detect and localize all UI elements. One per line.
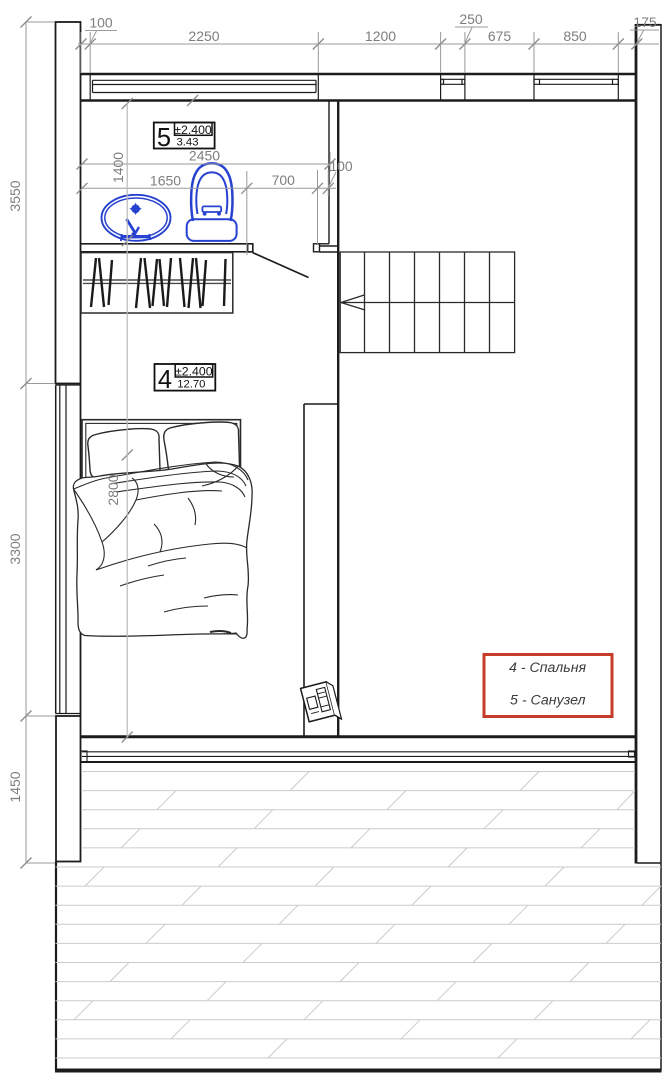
svg-text:3550: 3550: [7, 180, 23, 211]
svg-text:100: 100: [329, 158, 353, 174]
svg-text:250: 250: [459, 11, 483, 27]
svg-text:850: 850: [563, 28, 587, 44]
svg-text:12.70: 12.70: [177, 378, 205, 390]
svg-text:2250: 2250: [188, 28, 219, 44]
svg-text:3300: 3300: [7, 533, 23, 564]
svg-text:175: 175: [633, 14, 657, 30]
svg-text:675: 675: [488, 28, 512, 44]
svg-text:100: 100: [89, 15, 113, 31]
svg-text:2800: 2800: [105, 474, 121, 505]
svg-text:±2.400: ±2.400: [175, 364, 213, 378]
svg-text:5: 5: [157, 124, 171, 152]
svg-text:5 - Санузел: 5 - Санузел: [510, 693, 586, 709]
svg-text:1400: 1400: [110, 152, 126, 183]
svg-text:700: 700: [272, 172, 296, 188]
svg-text:1450: 1450: [7, 771, 23, 802]
svg-text:4: 4: [158, 366, 172, 394]
svg-text:4 - Спальня: 4 - Спальня: [509, 660, 587, 676]
svg-text:±2.400: ±2.400: [174, 123, 212, 137]
svg-text:1200: 1200: [365, 28, 396, 44]
svg-text:2450: 2450: [189, 148, 220, 164]
svg-text:1650: 1650: [150, 172, 181, 188]
